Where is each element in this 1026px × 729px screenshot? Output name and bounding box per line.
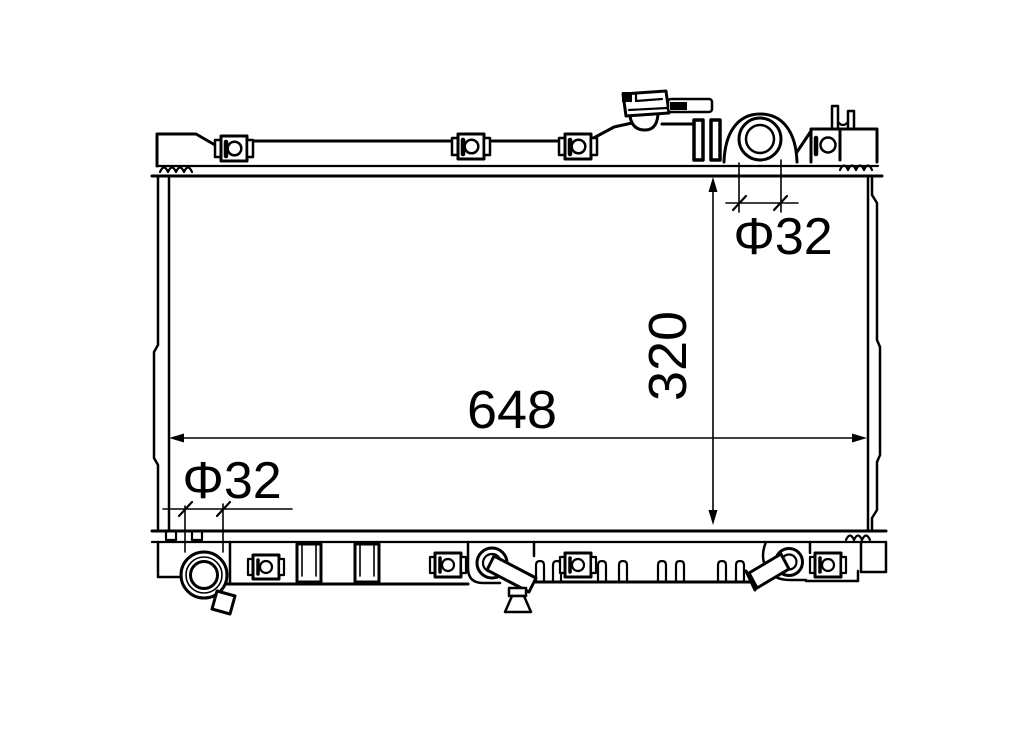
overflow-tube — [668, 99, 712, 112]
dim-core-width-label: 648 — [467, 380, 557, 440]
dim-core-height-label: 320 — [638, 311, 698, 401]
radiator-drawing-page: 648 320 Φ32 Φ32 — [0, 0, 1026, 729]
mounting-bracket-bottom-2 — [430, 553, 466, 577]
drain-plug — [212, 591, 235, 614]
mounting-bracket-bottom-1 — [248, 555, 284, 579]
outlet-pipe-inner — [191, 562, 218, 589]
bottom-rib-1 — [297, 544, 321, 582]
mounting-bracket-top-3 — [559, 134, 597, 159]
dim-inlet-diameter-label: Φ32 — [733, 208, 832, 266]
dim-outlet-diameter-label: Φ32 — [182, 452, 281, 510]
bottom-rib-2 — [355, 544, 379, 582]
mounting-bracket-top-2 — [452, 134, 490, 159]
inlet-pipe-inner — [746, 125, 774, 153]
radiator-drawing: 648 320 Φ32 Φ32 — [0, 0, 1026, 729]
mounting-bracket-bottom-4 — [810, 553, 846, 577]
mounting-bracket-top-1 — [215, 136, 253, 161]
mounting-bracket-bottom-3 — [560, 553, 596, 577]
cap-tab — [622, 92, 632, 102]
